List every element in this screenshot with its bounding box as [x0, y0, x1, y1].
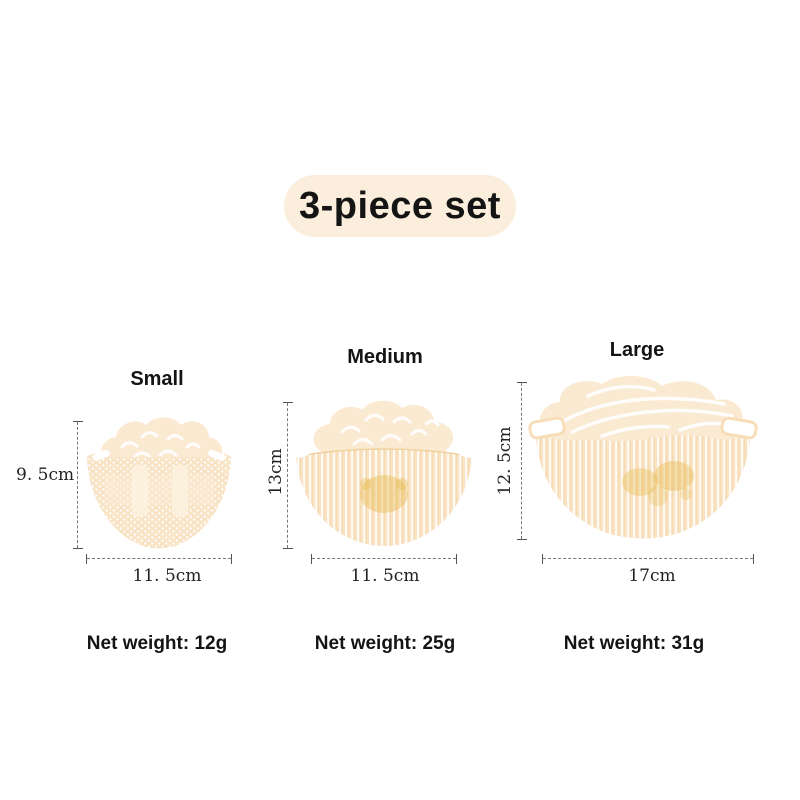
width-dimension-label-large: 17cm: [602, 566, 702, 586]
size-label-medium: Medium: [310, 346, 460, 369]
height-dimension-line-large: [521, 383, 522, 539]
small-bowl-illustration: [84, 413, 234, 553]
product-size-chart: 3-piece set Small Medium Large: [0, 0, 800, 800]
set-badge: 3-piece set: [284, 175, 516, 237]
medium-gold-accent: [360, 475, 408, 513]
width-dimension-label-small: 11. 5cm: [117, 566, 217, 586]
height-dimension-line-medium: [287, 403, 288, 548]
width-dimension-label-medium: 11. 5cm: [335, 566, 435, 586]
width-dimension-line-medium: [312, 558, 456, 559]
size-label-small: Small: [82, 368, 232, 391]
height-dimension-label-small: 9. 5cm: [16, 465, 70, 485]
width-dimension-line-small: [87, 558, 231, 559]
width-dimension-line-large: [543, 558, 753, 559]
size-label-large: Large: [562, 339, 712, 362]
net-weight-label-small: Net weight: 12g: [82, 633, 232, 655]
height-dimension-label-large: 12. 5cm: [495, 426, 515, 496]
medium-rice-mound: [314, 401, 454, 454]
net-weight-label-large: Net weight: 31g: [559, 633, 709, 655]
medium-bowl-illustration: [294, 398, 474, 548]
net-weight-label-medium: Net weight: 25g: [310, 633, 460, 655]
height-dimension-label-medium: 13cm: [266, 442, 286, 502]
set-badge-label: 3-piece set: [299, 185, 501, 228]
height-dimension-line-small: [77, 422, 78, 548]
large-bowl-illustration: [528, 374, 758, 544]
